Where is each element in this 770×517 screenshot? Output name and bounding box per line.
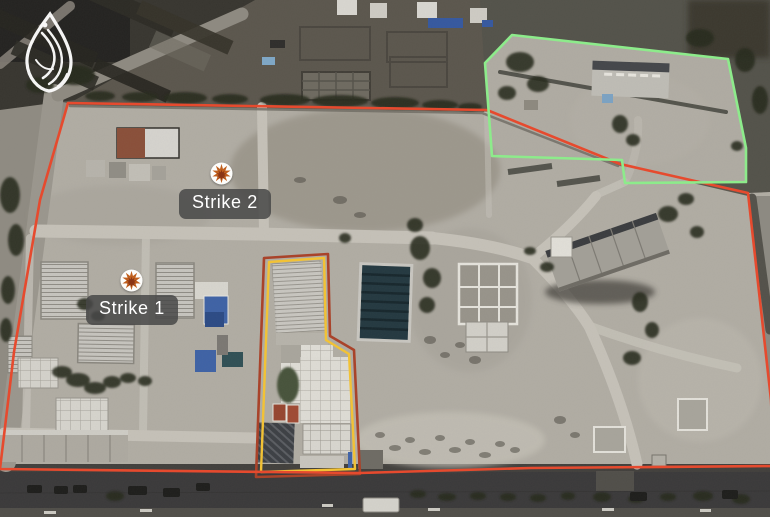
satellite-imagery [0,0,770,517]
explosion-fire-icon [210,162,233,185]
satellite-map: Strike 1 Strike 2 [0,0,770,517]
strike-1-label: Strike 1 [86,295,178,325]
strike-2-marker [210,162,233,185]
strike-1-marker [120,269,143,292]
al-jazeera-logo-icon [18,8,84,104]
noise-overlay [0,0,770,517]
explosion-fire-icon [120,269,143,292]
strike-2-label: Strike 2 [179,189,271,219]
